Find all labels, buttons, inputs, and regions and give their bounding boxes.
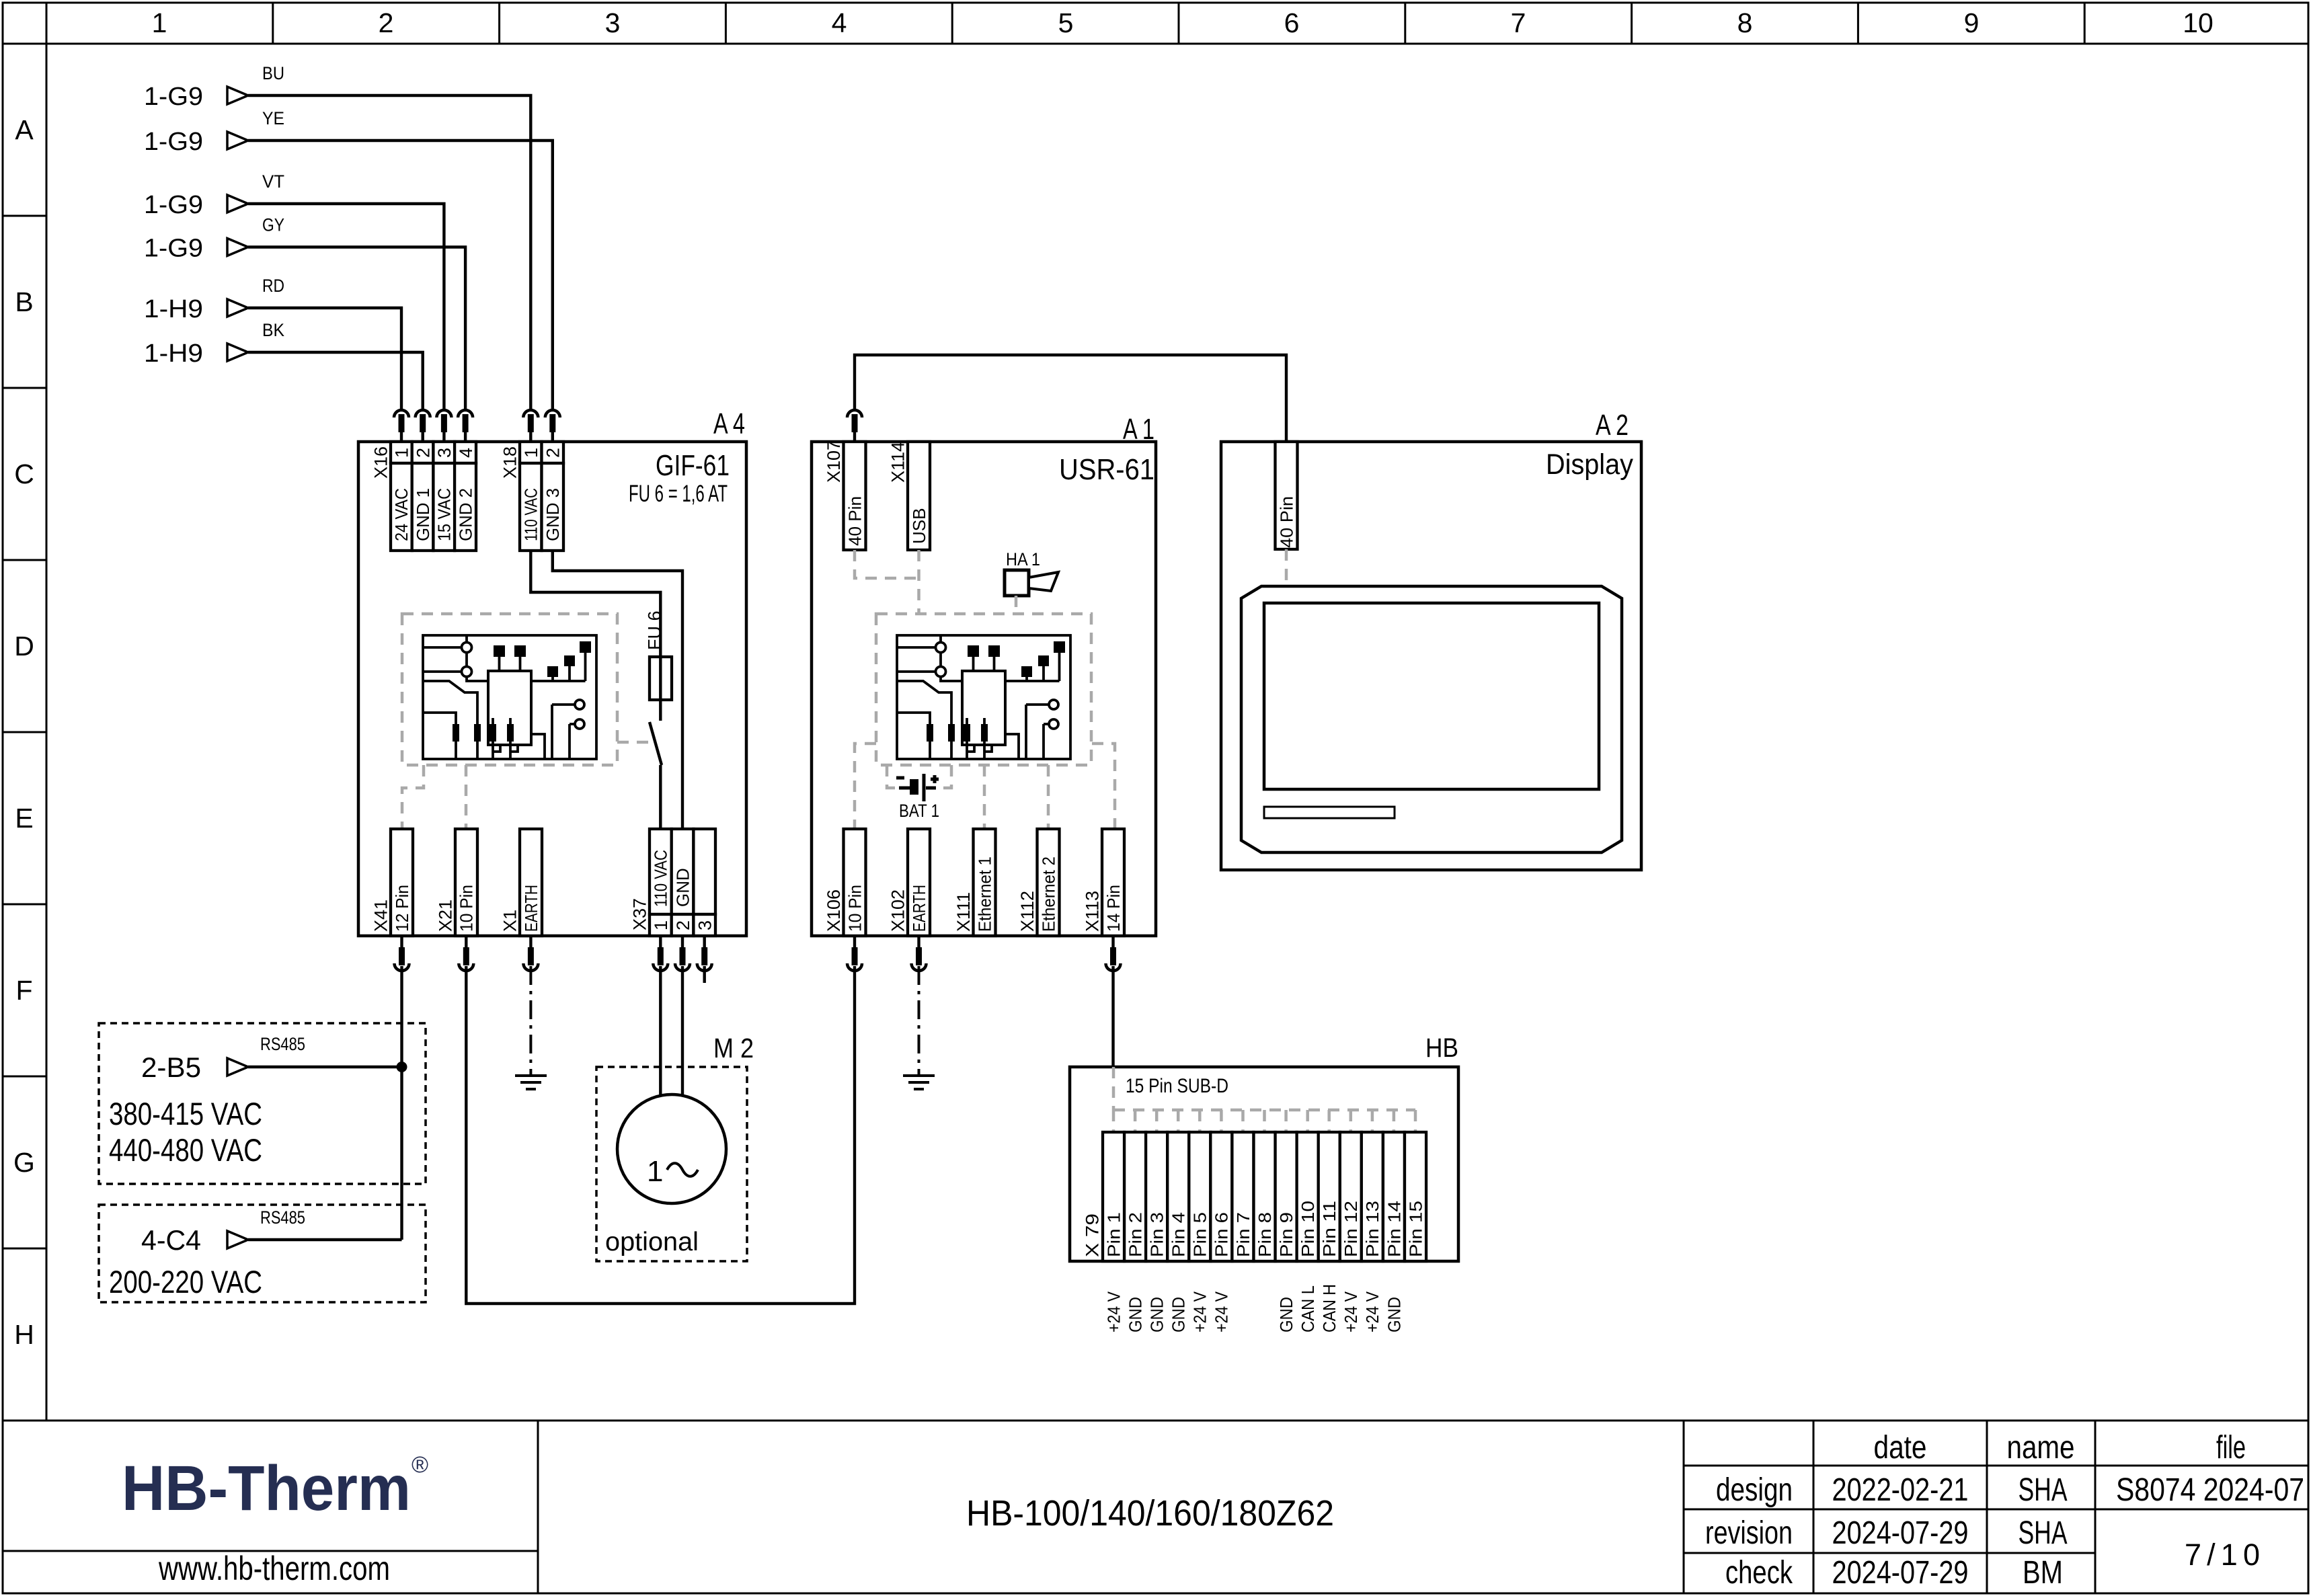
- svg-text:2: 2: [379, 7, 394, 38]
- svg-text:USR-61: USR-61: [1059, 453, 1154, 486]
- svg-text:12 Pin: 12 Pin: [392, 885, 412, 932]
- svg-text:HA 1: HA 1: [1006, 549, 1040, 569]
- svg-text:X107: X107: [824, 440, 844, 483]
- svg-text:6: 6: [1284, 7, 1300, 38]
- svg-text:G: G: [13, 1147, 35, 1178]
- svg-text:USB: USB: [909, 508, 929, 544]
- svg-text:®: ®: [412, 1452, 428, 1478]
- svg-text:1-G9: 1-G9: [144, 128, 203, 156]
- svg-text:380-415 VAC: 380-415 VAC: [109, 1096, 262, 1131]
- svg-text:9: 9: [1964, 7, 1980, 38]
- svg-text:revision: revision: [1705, 1515, 1793, 1551]
- svg-text:Pin 3: Pin 3: [1147, 1212, 1167, 1257]
- svg-text:HB: HB: [1425, 1033, 1458, 1063]
- svg-text:EARTH: EARTH: [909, 885, 929, 932]
- svg-text:1-G9: 1-G9: [144, 191, 203, 219]
- svg-text:Display: Display: [1546, 448, 1633, 481]
- svg-text:file: file: [2216, 1430, 2246, 1466]
- svg-text:Pin 7: Pin 7: [1233, 1212, 1253, 1257]
- svg-text:Pin 10: Pin 10: [1298, 1201, 1318, 1257]
- svg-text:HB-100/140/160/180Z62: HB-100/140/160/180Z62: [966, 1493, 1334, 1533]
- svg-text:2: 2: [673, 920, 693, 930]
- svg-text:GY: GY: [262, 215, 284, 235]
- svg-text:10: 10: [2183, 7, 2214, 38]
- svg-text:X106: X106: [824, 889, 844, 932]
- svg-text:X16: X16: [371, 446, 391, 479]
- svg-text:1: 1: [647, 1155, 663, 1188]
- svg-text:HB-Therm: HB-Therm: [122, 1453, 411, 1524]
- svg-text:4-C4: 4-C4: [141, 1224, 201, 1256]
- svg-text:15 Pin SUB-D: 15 Pin SUB-D: [1126, 1075, 1228, 1097]
- svg-text:X111: X111: [953, 892, 974, 932]
- svg-text:1-H9: 1-H9: [144, 295, 203, 323]
- svg-text:2-B5: 2-B5: [141, 1051, 201, 1083]
- svg-text:3: 3: [695, 920, 715, 930]
- svg-text:4: 4: [832, 7, 847, 38]
- svg-text:+24 V: +24 V: [1212, 1291, 1232, 1332]
- svg-text:Pin 5: Pin 5: [1190, 1212, 1210, 1257]
- svg-text:H: H: [14, 1319, 34, 1350]
- svg-text:Ethernet 2: Ethernet 2: [1038, 856, 1058, 932]
- svg-text:VT: VT: [262, 171, 284, 192]
- svg-text:RD: RD: [262, 276, 284, 296]
- svg-text:Pin 1: Pin 1: [1103, 1212, 1124, 1257]
- svg-text:2024-07-29: 2024-07-29: [1832, 1555, 1969, 1591]
- svg-text:40 Pin: 40 Pin: [1276, 496, 1296, 548]
- svg-text:5: 5: [1058, 7, 1074, 38]
- svg-text:X113: X113: [1083, 891, 1103, 932]
- svg-text:X41: X41: [371, 900, 391, 932]
- svg-text:Pin 4: Pin 4: [1169, 1212, 1189, 1257]
- svg-text:A 1: A 1: [1123, 413, 1154, 446]
- svg-text:GND: GND: [1276, 1297, 1296, 1332]
- svg-text:SHA: SHA: [2019, 1472, 2068, 1508]
- svg-text:+24 V: +24 V: [1362, 1291, 1382, 1332]
- svg-text:X102: X102: [888, 889, 908, 932]
- svg-text:name: name: [2007, 1430, 2075, 1466]
- svg-text:RS485: RS485: [260, 1207, 305, 1228]
- svg-text:GND: GND: [1147, 1297, 1167, 1332]
- svg-text:X21: X21: [436, 900, 456, 932]
- svg-text:2: 2: [413, 448, 433, 458]
- svg-text:1-G9: 1-G9: [144, 235, 203, 263]
- svg-text:check: check: [1725, 1555, 1793, 1591]
- svg-text:X18: X18: [500, 446, 520, 479]
- svg-text:1: 1: [521, 448, 541, 458]
- svg-text:3: 3: [434, 448, 455, 458]
- svg-text:BAT 1: BAT 1: [899, 801, 939, 821]
- svg-text:Pin 15: Pin 15: [1405, 1201, 1425, 1257]
- svg-text:E: E: [15, 803, 33, 834]
- svg-text:BU: BU: [262, 63, 284, 83]
- svg-text:GND: GND: [1126, 1297, 1146, 1332]
- svg-text:FU 6: FU 6: [645, 610, 665, 650]
- svg-text:C: C: [14, 458, 34, 489]
- svg-text:Pin 14: Pin 14: [1384, 1201, 1404, 1257]
- svg-text:GND 1: GND 1: [413, 488, 433, 541]
- svg-text:4: 4: [456, 448, 476, 458]
- svg-text:GND: GND: [1384, 1297, 1404, 1332]
- svg-text:1-G9: 1-G9: [144, 83, 203, 111]
- svg-text:GIF-61: GIF-61: [656, 449, 730, 482]
- svg-text:GND: GND: [1169, 1297, 1189, 1332]
- svg-text:1-H9: 1-H9: [144, 340, 203, 368]
- svg-text:F: F: [15, 975, 32, 1006]
- svg-text:Pin 11: Pin 11: [1319, 1201, 1339, 1257]
- svg-text:10 Pin: 10 Pin: [845, 885, 865, 932]
- svg-text:Pin 8: Pin 8: [1255, 1212, 1275, 1257]
- svg-text:GND 3: GND 3: [543, 488, 563, 541]
- svg-text:3: 3: [605, 7, 621, 38]
- svg-text:X37: X37: [630, 898, 650, 930]
- svg-text:B: B: [15, 286, 33, 317]
- svg-text:www.hb-therm.com: www.hb-therm.com: [158, 1550, 390, 1587]
- svg-text:A: A: [15, 114, 34, 145]
- svg-text:200-220 VAC: 200-220 VAC: [109, 1264, 262, 1300]
- svg-text:110 VAC: 110 VAC: [651, 850, 671, 907]
- svg-text:design: design: [1716, 1472, 1793, 1508]
- svg-text:Pin 13: Pin 13: [1362, 1201, 1382, 1257]
- svg-text:Pin 12: Pin 12: [1341, 1201, 1361, 1257]
- svg-text:14 Pin: 14 Pin: [1103, 885, 1124, 932]
- svg-text:1: 1: [392, 448, 412, 458]
- svg-text:10 Pin: 10 Pin: [457, 885, 477, 932]
- svg-text:CAN L: CAN L: [1298, 1285, 1318, 1332]
- svg-text:8: 8: [1737, 7, 1753, 38]
- svg-text:Ethernet 1: Ethernet 1: [974, 856, 994, 932]
- svg-text:+24 V: +24 V: [1103, 1291, 1124, 1332]
- svg-text:YE: YE: [262, 108, 284, 128]
- svg-text:A 4: A 4: [713, 407, 745, 440]
- svg-text:GND 2: GND 2: [455, 488, 475, 541]
- svg-text:2022-02-21: 2022-02-21: [1832, 1472, 1969, 1508]
- svg-text:BM: BM: [2023, 1555, 2063, 1591]
- svg-text:Pin 9: Pin 9: [1276, 1212, 1296, 1257]
- svg-text:RS485: RS485: [260, 1034, 305, 1054]
- svg-text:X1: X1: [500, 910, 520, 932]
- svg-text:7: 7: [1511, 7, 1526, 38]
- svg-text:1: 1: [651, 920, 671, 930]
- svg-text:15 VAC: 15 VAC: [434, 488, 455, 541]
- svg-text:SHA: SHA: [2019, 1515, 2068, 1551]
- svg-text:40 Pin: 40 Pin: [845, 496, 865, 546]
- svg-text:Pin 6: Pin 6: [1212, 1212, 1232, 1257]
- svg-text:FU 6 = 1,6 AT: FU 6 = 1,6 AT: [629, 481, 728, 507]
- svg-text:CAN H: CAN H: [1319, 1284, 1339, 1332]
- svg-text:1: 1: [152, 7, 167, 38]
- svg-text:Pin 2: Pin 2: [1126, 1212, 1146, 1257]
- svg-text:M 2: M 2: [713, 1033, 754, 1064]
- svg-text:date: date: [1874, 1430, 1927, 1466]
- svg-text:2: 2: [543, 448, 563, 458]
- svg-text:+24 V: +24 V: [1190, 1291, 1210, 1332]
- svg-text:D: D: [14, 631, 34, 662]
- svg-text:110 VAC: 110 VAC: [521, 488, 541, 541]
- svg-text:X 79: X 79: [1083, 1213, 1103, 1257]
- svg-text:EARTH: EARTH: [521, 885, 541, 932]
- svg-text:+24 V: +24 V: [1341, 1291, 1361, 1332]
- svg-text:GND: GND: [672, 868, 693, 907]
- svg-text:X112: X112: [1017, 891, 1037, 932]
- svg-text:A 2: A 2: [1596, 409, 1629, 442]
- svg-text:optional: optional: [605, 1228, 699, 1256]
- svg-text:S8074 2024-07: S8074 2024-07: [2116, 1472, 2304, 1508]
- svg-text:2024-07-29: 2024-07-29: [1832, 1515, 1969, 1551]
- svg-text:7/10: 7/10: [2185, 1538, 2260, 1572]
- svg-text:440-480 VAC: 440-480 VAC: [109, 1132, 262, 1168]
- svg-text:24 VAC: 24 VAC: [391, 488, 412, 541]
- svg-text:X114: X114: [888, 442, 908, 483]
- svg-text:BK: BK: [262, 320, 284, 340]
